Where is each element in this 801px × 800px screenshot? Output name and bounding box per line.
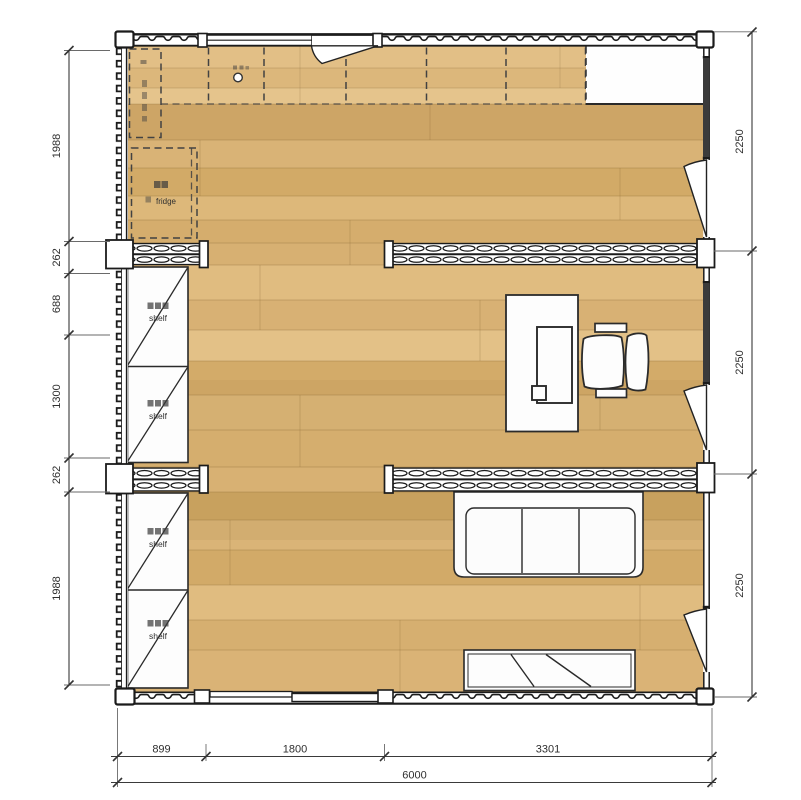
svg-text:1988: 1988 xyxy=(51,576,63,600)
svg-text:6000: 6000 xyxy=(402,770,426,782)
svg-text:shelf: shelf xyxy=(149,411,168,421)
svg-text:262: 262 xyxy=(51,466,63,484)
svg-text:2250: 2250 xyxy=(734,350,746,374)
svg-text:1300: 1300 xyxy=(51,384,63,408)
svg-text:1988: 1988 xyxy=(51,134,63,158)
svg-text:899: 899 xyxy=(152,744,170,756)
svg-text:2250: 2250 xyxy=(734,129,746,153)
svg-text:262: 262 xyxy=(51,248,63,266)
svg-text:shelf: shelf xyxy=(149,539,168,549)
svg-text:fridge: fridge xyxy=(156,197,177,206)
svg-text:1800: 1800 xyxy=(283,744,307,756)
svg-text:2250: 2250 xyxy=(734,573,746,597)
svg-text:688: 688 xyxy=(51,295,63,313)
svg-text:shelf: shelf xyxy=(149,631,168,641)
svg-text:3301: 3301 xyxy=(536,744,560,756)
svg-text:shelf: shelf xyxy=(149,313,168,323)
